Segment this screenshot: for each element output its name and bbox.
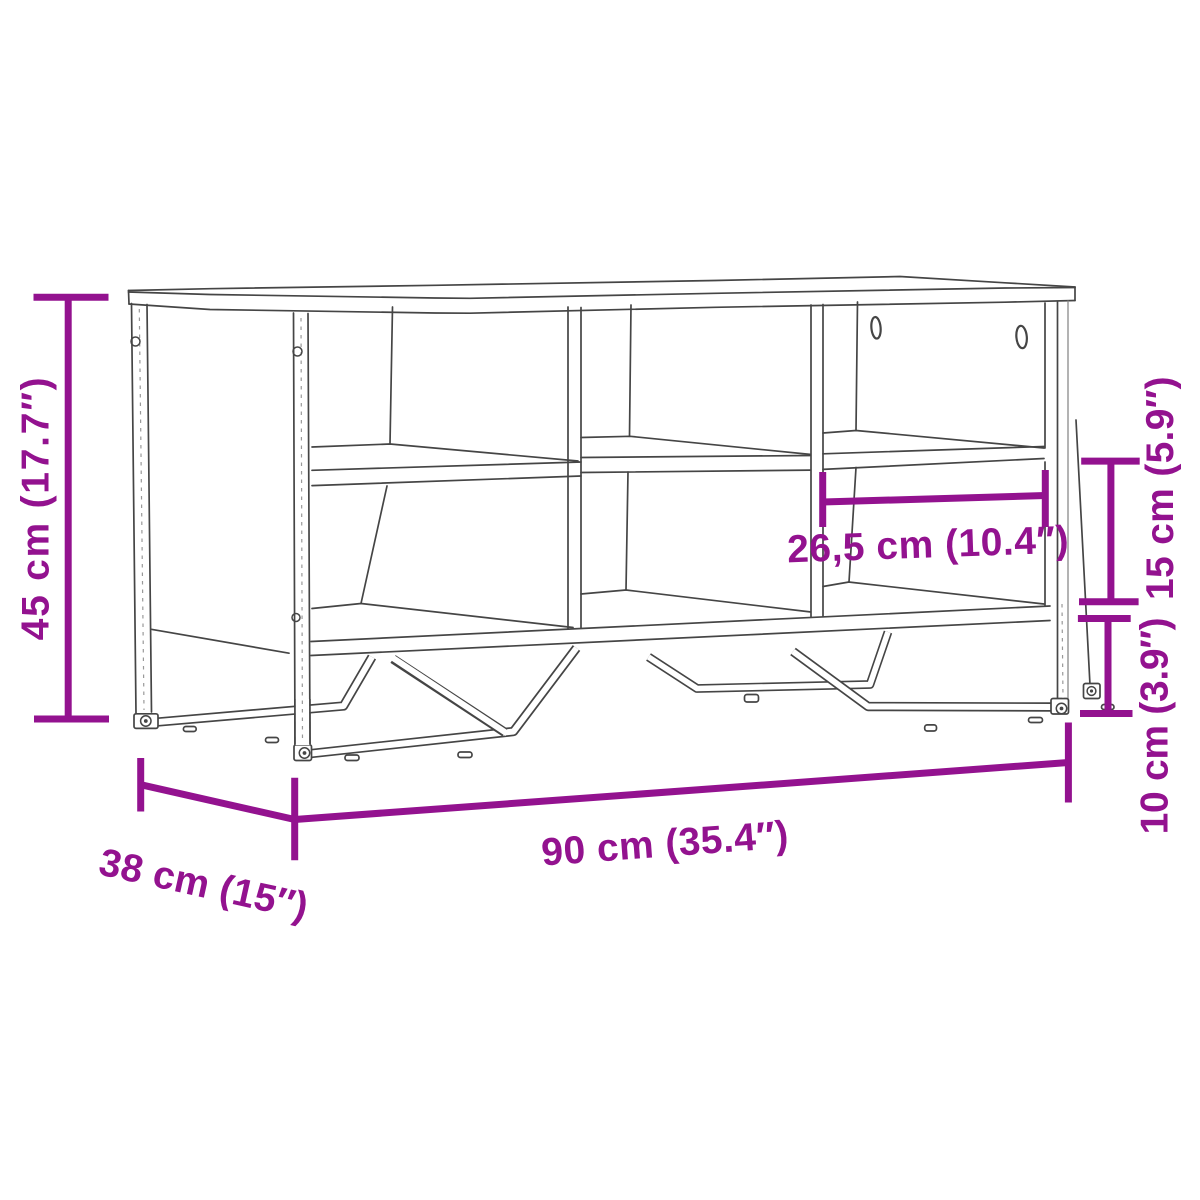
svg-text:45 cm (17.7″): 45 cm (17.7″) bbox=[15, 376, 58, 641]
svg-text:15 cm (5.9″): 15 cm (5.9″) bbox=[1139, 376, 1182, 600]
svg-text:10 cm (3.9″): 10 cm (3.9″) bbox=[1134, 618, 1177, 835]
